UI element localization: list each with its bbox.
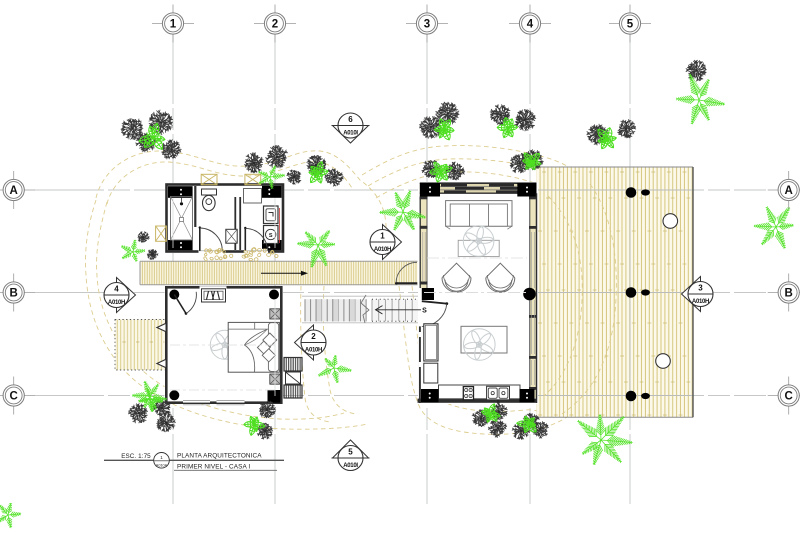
svg-text:PRIMER NIVEL - CASA I: PRIMER NIVEL - CASA I [177,464,250,471]
svg-text:A010H: A010H [108,300,125,306]
svg-text:1: 1 [170,19,177,31]
svg-text:4: 4 [527,19,534,31]
svg-text:A010H: A010H [305,348,322,354]
svg-text:B: B [785,288,793,300]
svg-text:6: 6 [348,115,353,124]
svg-text:5: 5 [627,19,634,31]
svg-text:S: S [422,308,427,315]
svg-text:A010H: A010H [374,247,391,253]
svg-text:B: B [10,288,18,300]
svg-text:2: 2 [311,332,316,341]
svg-text:3: 3 [424,19,430,31]
svg-text:PLANTA ARQUITECTONICA: PLANTA ARQUITECTONICA [177,453,262,460]
svg-text:5: 5 [348,448,353,457]
svg-text:A010A: A010A [156,464,168,468]
svg-text:2: 2 [272,19,278,31]
svg-text:C: C [10,391,18,403]
svg-text:A: A [785,185,793,197]
svg-text:S: S [269,233,273,239]
svg-text:4: 4 [114,285,119,294]
svg-text:A010I: A010I [343,463,358,469]
svg-text:C: C [785,391,793,403]
svg-text:1: 1 [380,232,385,241]
svg-text:ESC. 1:75: ESC. 1:75 [121,453,151,460]
svg-text:A: A [10,185,18,197]
svg-text:A010I: A010I [343,131,358,137]
svg-text:3: 3 [698,284,703,293]
svg-text:A010H: A010H [692,299,709,305]
